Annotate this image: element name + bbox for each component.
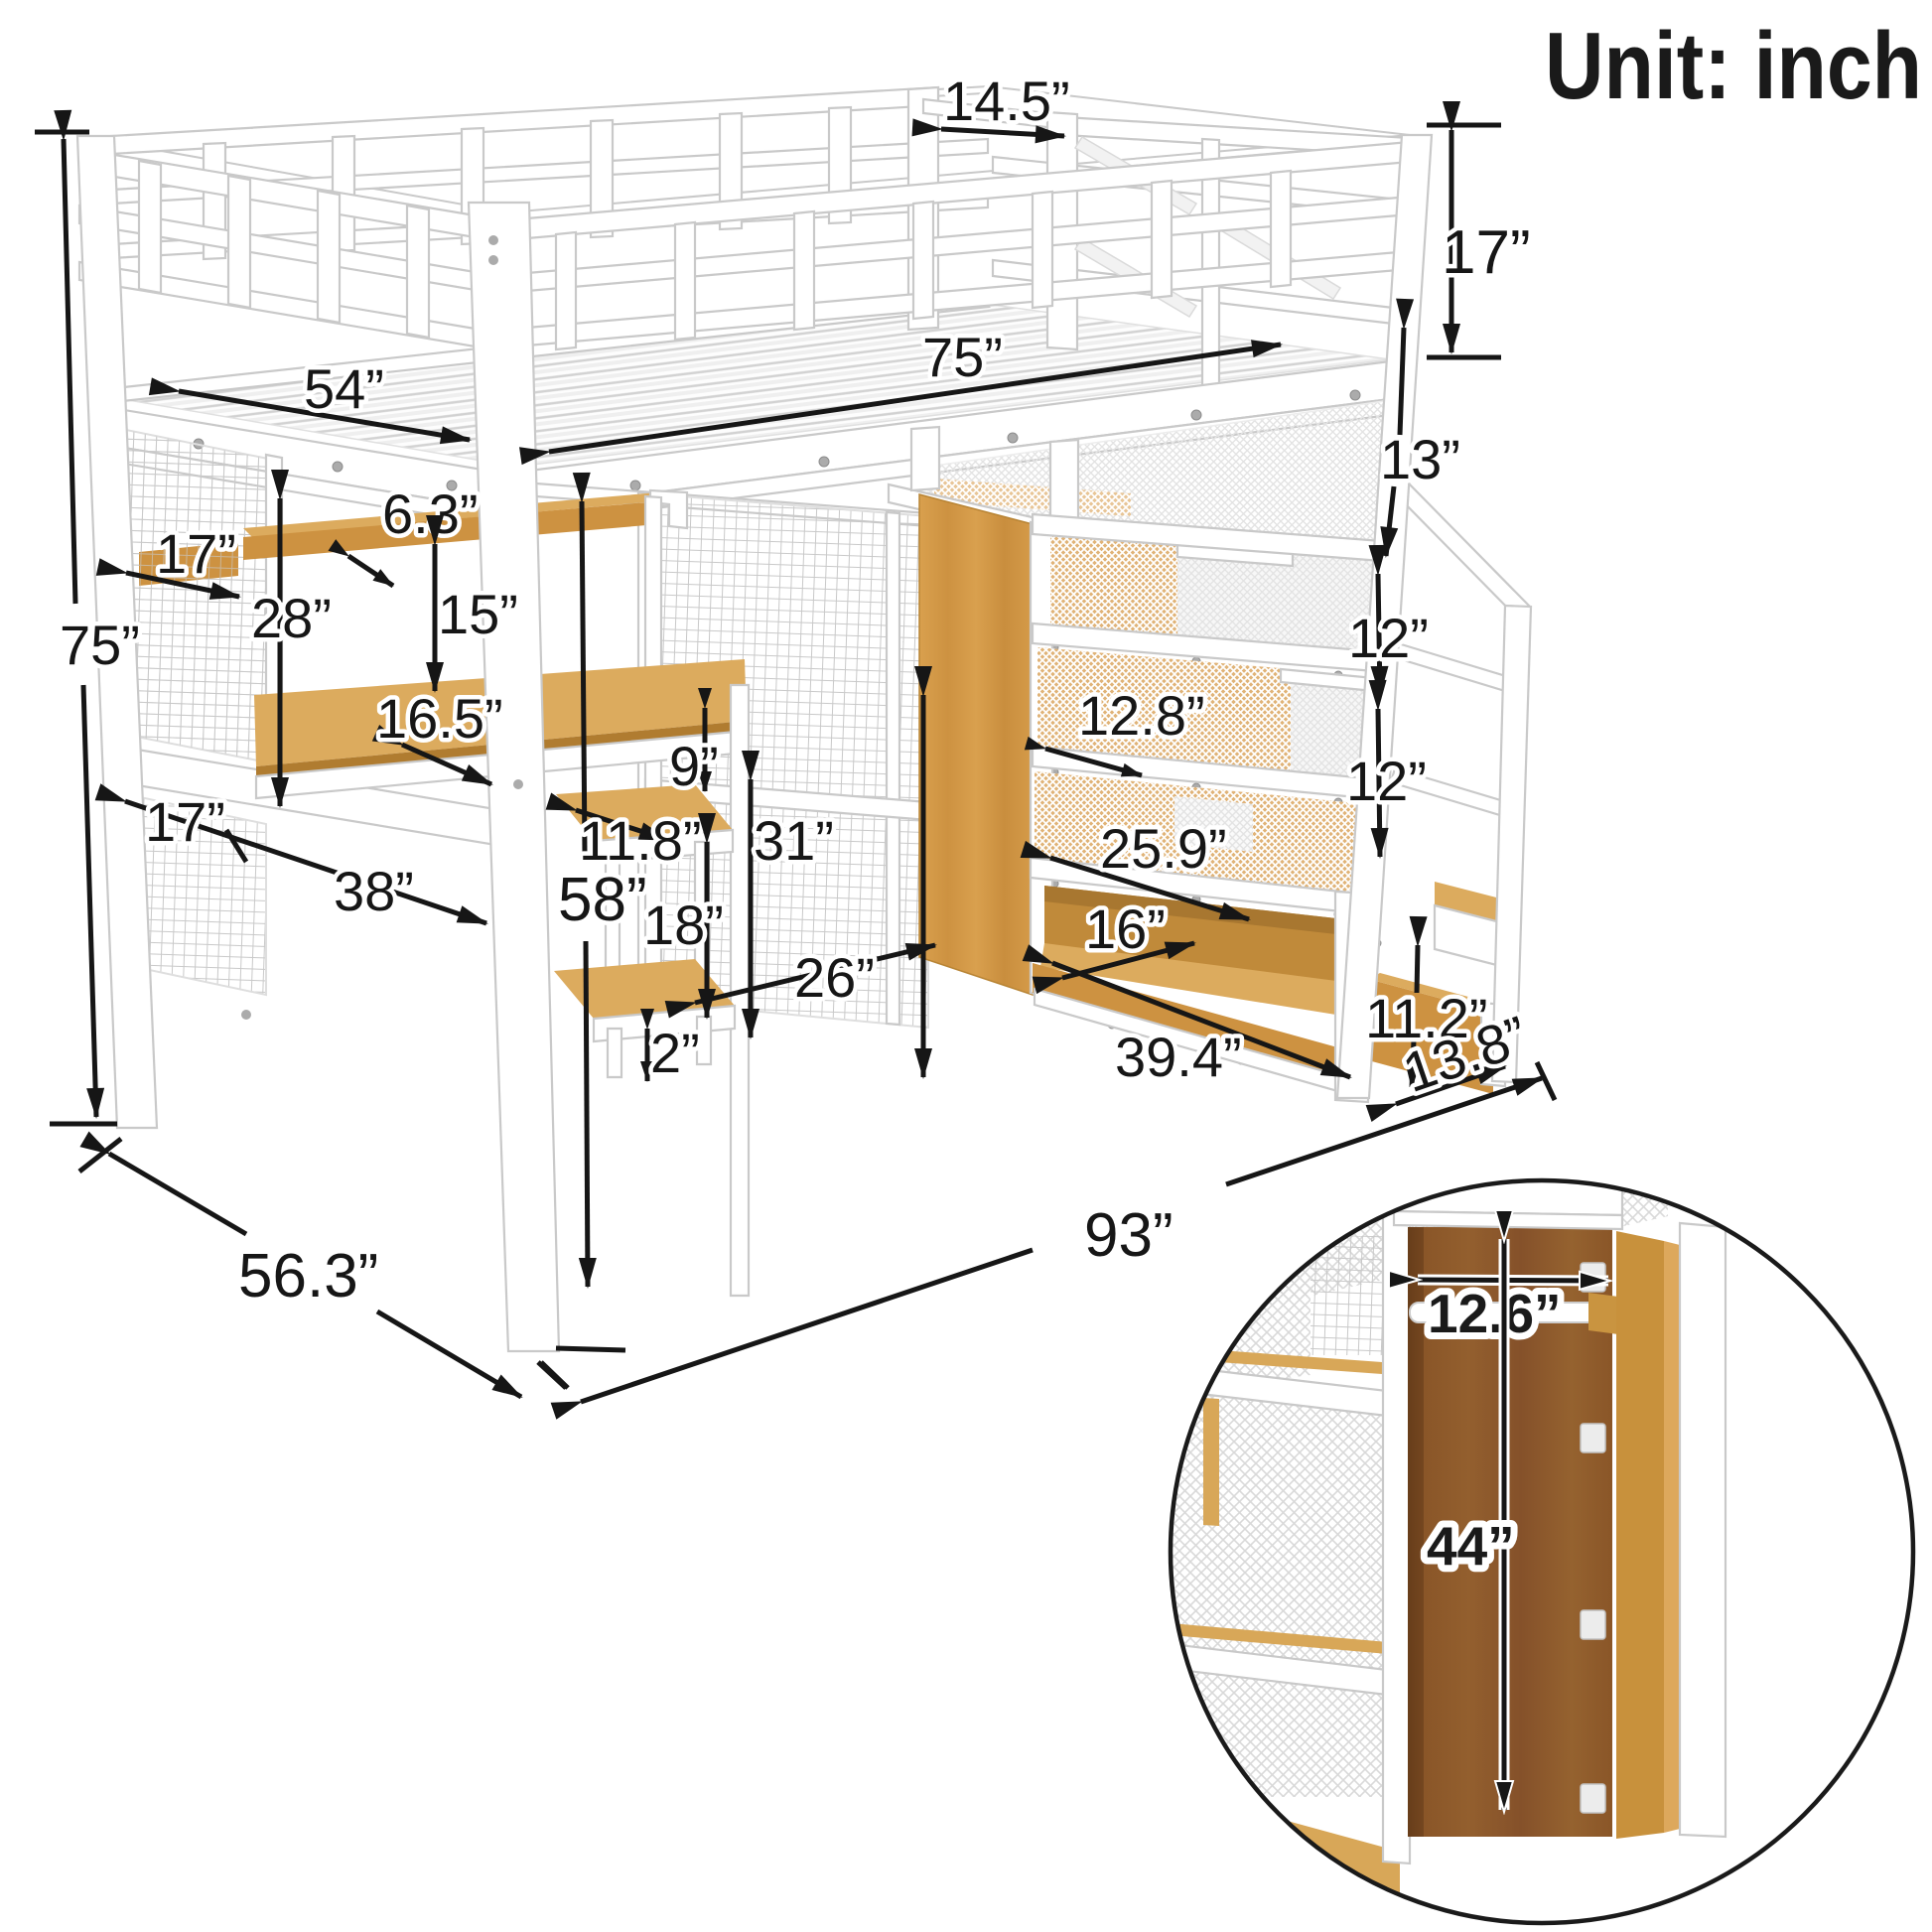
svg-text:12”: 12”	[1346, 750, 1427, 812]
svg-text:56.3”: 56.3”	[238, 1242, 378, 1311]
svg-text:39.4”: 39.4”	[1115, 1026, 1242, 1088]
svg-text:14.5”: 14.5”	[943, 69, 1070, 132]
svg-text:12”: 12”	[1348, 607, 1429, 669]
svg-text:75”: 75”	[922, 326, 1003, 388]
svg-text:38”: 38”	[334, 860, 414, 922]
svg-text:15”: 15”	[438, 583, 518, 645]
svg-text:17”: 17”	[145, 790, 225, 853]
svg-text:25.9”: 25.9”	[1100, 817, 1227, 880]
svg-text:12.8”: 12.8”	[1078, 684, 1205, 747]
svg-text:2”: 2”	[650, 1022, 700, 1084]
svg-text:6.3”: 6.3”	[382, 483, 479, 545]
svg-text:16”: 16”	[1085, 897, 1166, 960]
svg-text:93”: 93”	[1084, 1201, 1173, 1270]
svg-text:9”: 9”	[669, 735, 719, 797]
svg-text:12.6”: 12.6”	[1428, 1283, 1562, 1344]
svg-text:Unit: inch: Unit: inch	[1545, 13, 1922, 119]
svg-text:44”: 44”	[1427, 1515, 1515, 1577]
svg-text:13”: 13”	[1380, 428, 1460, 490]
svg-text:17”: 17”	[156, 522, 236, 585]
svg-text:54”: 54”	[304, 357, 384, 420]
svg-text:26”: 26”	[794, 946, 875, 1009]
svg-text:11.8”: 11.8”	[579, 809, 701, 872]
svg-text:17”: 17”	[1442, 218, 1531, 287]
svg-text:31”: 31”	[754, 809, 834, 872]
svg-text:16.5”: 16.5”	[376, 687, 503, 750]
svg-text:75”: 75”	[60, 614, 140, 676]
svg-text:28”: 28”	[251, 587, 332, 649]
svg-text:58”: 58”	[558, 866, 647, 934]
svg-text:18”: 18”	[643, 894, 724, 956]
